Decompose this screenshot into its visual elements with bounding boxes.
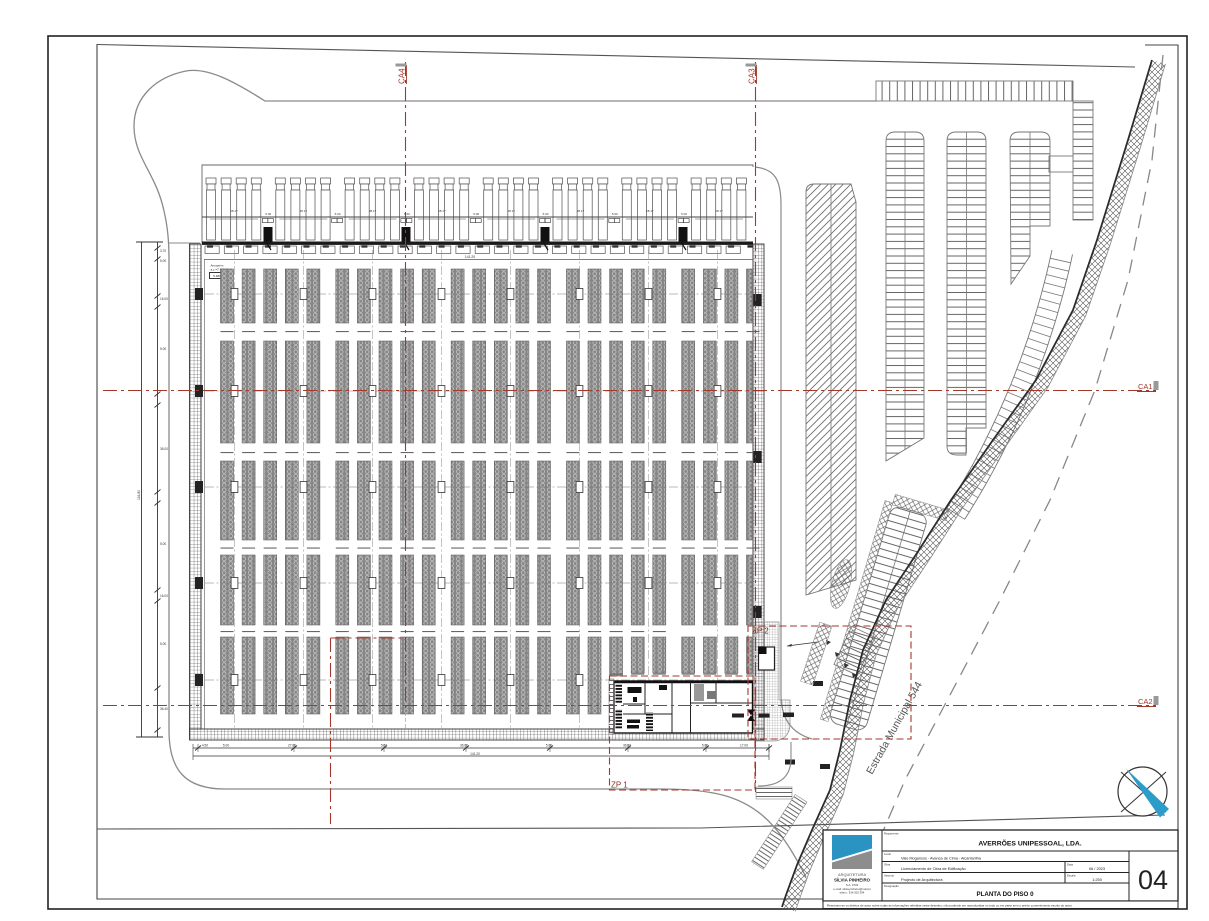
svg-text:telem.: 914 502 394: telem.: 914 502 394 bbox=[840, 891, 865, 895]
svg-text:36.00: 36.00 bbox=[623, 744, 631, 748]
svg-text:5.00: 5.00 bbox=[160, 642, 166, 646]
svg-text:Escala: Escala bbox=[1067, 874, 1076, 878]
svg-text:28.17: 28.17 bbox=[230, 209, 238, 213]
svg-text:141.20: 141.20 bbox=[470, 752, 480, 756]
svg-text:16.00: 16.00 bbox=[160, 594, 168, 598]
svg-text:28.17: 28.17 bbox=[715, 209, 723, 213]
svg-text:17.00: 17.00 bbox=[740, 744, 748, 748]
svg-text:Assunto: Assunto bbox=[884, 874, 895, 878]
svg-text:5.00: 5.00 bbox=[543, 212, 549, 216]
svg-text:36.00: 36.00 bbox=[460, 744, 468, 748]
svg-text:116.80: 116.80 bbox=[137, 490, 141, 500]
svg-text:5.00: 5.00 bbox=[335, 212, 341, 216]
svg-text:28.17: 28.17 bbox=[300, 209, 308, 213]
svg-text:Projecto de Arquitectura: Projecto de Arquitectura bbox=[901, 877, 943, 882]
svg-text:Local: Local bbox=[884, 852, 891, 856]
svg-text:Obra: Obra bbox=[884, 863, 891, 867]
svg-text:PLANTA DO PISO 0: PLANTA DO PISO 0 bbox=[976, 891, 1034, 898]
svg-text:28.17: 28.17 bbox=[369, 209, 377, 213]
svg-text:5.00: 5.00 bbox=[160, 259, 166, 263]
svg-text:5.00: 5.00 bbox=[160, 347, 166, 351]
svg-text:5.480: 5.480 bbox=[213, 274, 221, 278]
svg-text:28.17: 28.17 bbox=[646, 209, 654, 213]
svg-text:5.00: 5.00 bbox=[223, 744, 229, 748]
svg-text:CA3: CA3 bbox=[748, 68, 757, 84]
svg-text:36.40: 36.40 bbox=[160, 707, 168, 711]
svg-text:Vale Mogansos - Avanca de Cima: Vale Mogansos - Avanca de Cima - Alcanta… bbox=[901, 856, 982, 860]
svg-text:5.00: 5.00 bbox=[160, 542, 166, 546]
svg-text:28.17: 28.17 bbox=[577, 209, 585, 213]
svg-text:Designação: Designação bbox=[884, 884, 899, 888]
svg-text:36.00: 36.00 bbox=[160, 447, 168, 451]
svg-text:4.50: 4.50 bbox=[202, 744, 208, 748]
svg-text:Reservam-se os direitos de aut: Reservam-se os direitos de autor sobre t… bbox=[827, 903, 1073, 907]
svg-text:5.00: 5.00 bbox=[265, 212, 271, 216]
svg-text:SÍLVIA PINHEIRO: SÍLVIA PINHEIRO bbox=[834, 878, 871, 883]
svg-text:ARQUITETURA: ARQUITETURA bbox=[838, 872, 867, 877]
svg-text:Requerente: Requerente bbox=[884, 832, 899, 836]
svg-text:CA4: CA4 bbox=[398, 68, 407, 84]
svg-text:ZP 1: ZP 1 bbox=[611, 781, 628, 790]
svg-text:5.00: 5.00 bbox=[612, 212, 618, 216]
svg-text:Data: Data bbox=[1067, 863, 1073, 867]
svg-text:5.00: 5.00 bbox=[473, 212, 479, 216]
svg-text:04: 04 bbox=[1138, 865, 1168, 895]
svg-text:5.00: 5.00 bbox=[381, 744, 387, 748]
svg-text:AVERRÕES UNIPESSOAL, LDA.: AVERRÕES UNIPESSOAL, LDA. bbox=[978, 839, 1081, 848]
svg-text:1:250: 1:250 bbox=[1092, 877, 1103, 882]
svg-text:28.17: 28.17 bbox=[438, 209, 446, 213]
svg-text:5.00: 5.00 bbox=[546, 744, 552, 748]
svg-text:28.17: 28.17 bbox=[507, 209, 515, 213]
svg-text:5.00: 5.00 bbox=[681, 212, 687, 216]
svg-text:CA1: CA1 bbox=[1138, 382, 1153, 391]
svg-text:3.70: 3.70 bbox=[160, 249, 166, 253]
svg-text:06 / 2023: 06 / 2023 bbox=[1089, 866, 1105, 871]
svg-text:5.00: 5.00 bbox=[702, 744, 708, 748]
svg-text:5.00: 5.00 bbox=[404, 212, 410, 216]
svg-text:27.00: 27.00 bbox=[288, 744, 296, 748]
svg-text:CA2: CA2 bbox=[1138, 697, 1153, 706]
svg-text:141.20: 141.20 bbox=[465, 255, 475, 259]
svg-text:16.00: 16.00 bbox=[160, 297, 168, 301]
svg-text:Licenciamento de Obra de Edifi: Licenciamento de Obra de Edificação bbox=[901, 866, 966, 871]
svg-text:ZP 2: ZP 2 bbox=[752, 627, 769, 636]
